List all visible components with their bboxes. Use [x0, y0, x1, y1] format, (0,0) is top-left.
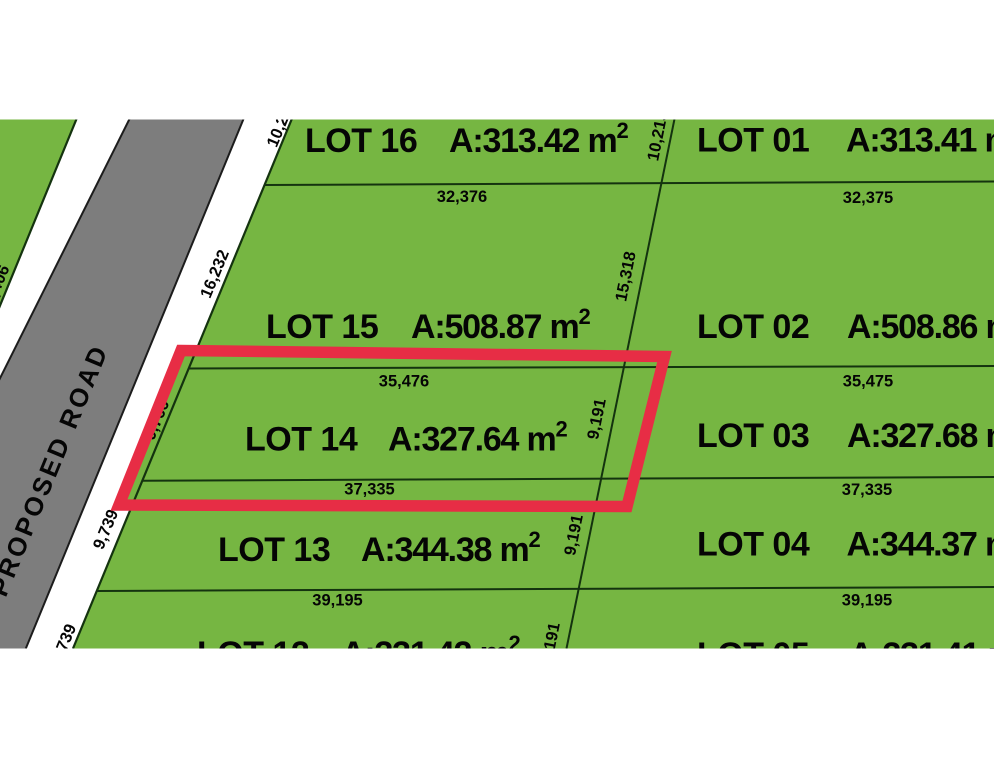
svg-text:LOT 16: LOT 16	[305, 122, 417, 160]
svg-text:LOT 02: LOT 02	[697, 308, 809, 346]
svg-text:LOT 05: LOT 05	[697, 636, 809, 674]
svg-text:LOT 03: LOT 03	[697, 417, 809, 455]
svg-text:A:331.42 m2: A:331.42 m2	[341, 631, 521, 673]
svg-text:39,195: 39,195	[842, 592, 892, 610]
svg-text:A:508.87 m2: A:508.87 m2	[411, 304, 591, 346]
svg-text:A:327.64 m2: A:327.64 m2	[388, 417, 568, 459]
svg-text:LOT 04: LOT 04	[697, 526, 810, 564]
svg-text:A:508.86 m2: A:508.86 m2	[847, 304, 994, 346]
svg-text:A:313.41 m2: A:313.41 m2	[846, 118, 994, 160]
svg-text:A:331.41 m2: A:331.41 m2	[849, 632, 994, 674]
svg-text:LOT 01: LOT 01	[697, 122, 809, 160]
svg-text:37,335: 37,335	[842, 481, 892, 499]
svg-text:A:327.68 m2: A:327.68 m2	[847, 413, 994, 455]
svg-text:A:344.38 m2: A:344.38 m2	[361, 527, 541, 569]
svg-text:39,195: 39,195	[312, 592, 362, 610]
svg-text:LOT 14: LOT 14	[245, 421, 358, 459]
svg-text:A:344.37 m2: A:344.37 m2	[847, 522, 994, 564]
svg-text:32,375: 32,375	[843, 189, 893, 207]
svg-text:32,376: 32,376	[437, 188, 487, 206]
svg-text:A:313.42 m2: A:313.42 m2	[449, 118, 629, 160]
svg-text:LOT 12: LOT 12	[197, 635, 309, 673]
svg-text:LOT 13: LOT 13	[218, 531, 330, 569]
svg-text:35,476: 35,476	[379, 373, 429, 391]
svg-text:37,335: 37,335	[344, 481, 394, 499]
svg-text:LOT 15: LOT 15	[266, 308, 378, 346]
svg-text:35,475: 35,475	[843, 373, 893, 391]
